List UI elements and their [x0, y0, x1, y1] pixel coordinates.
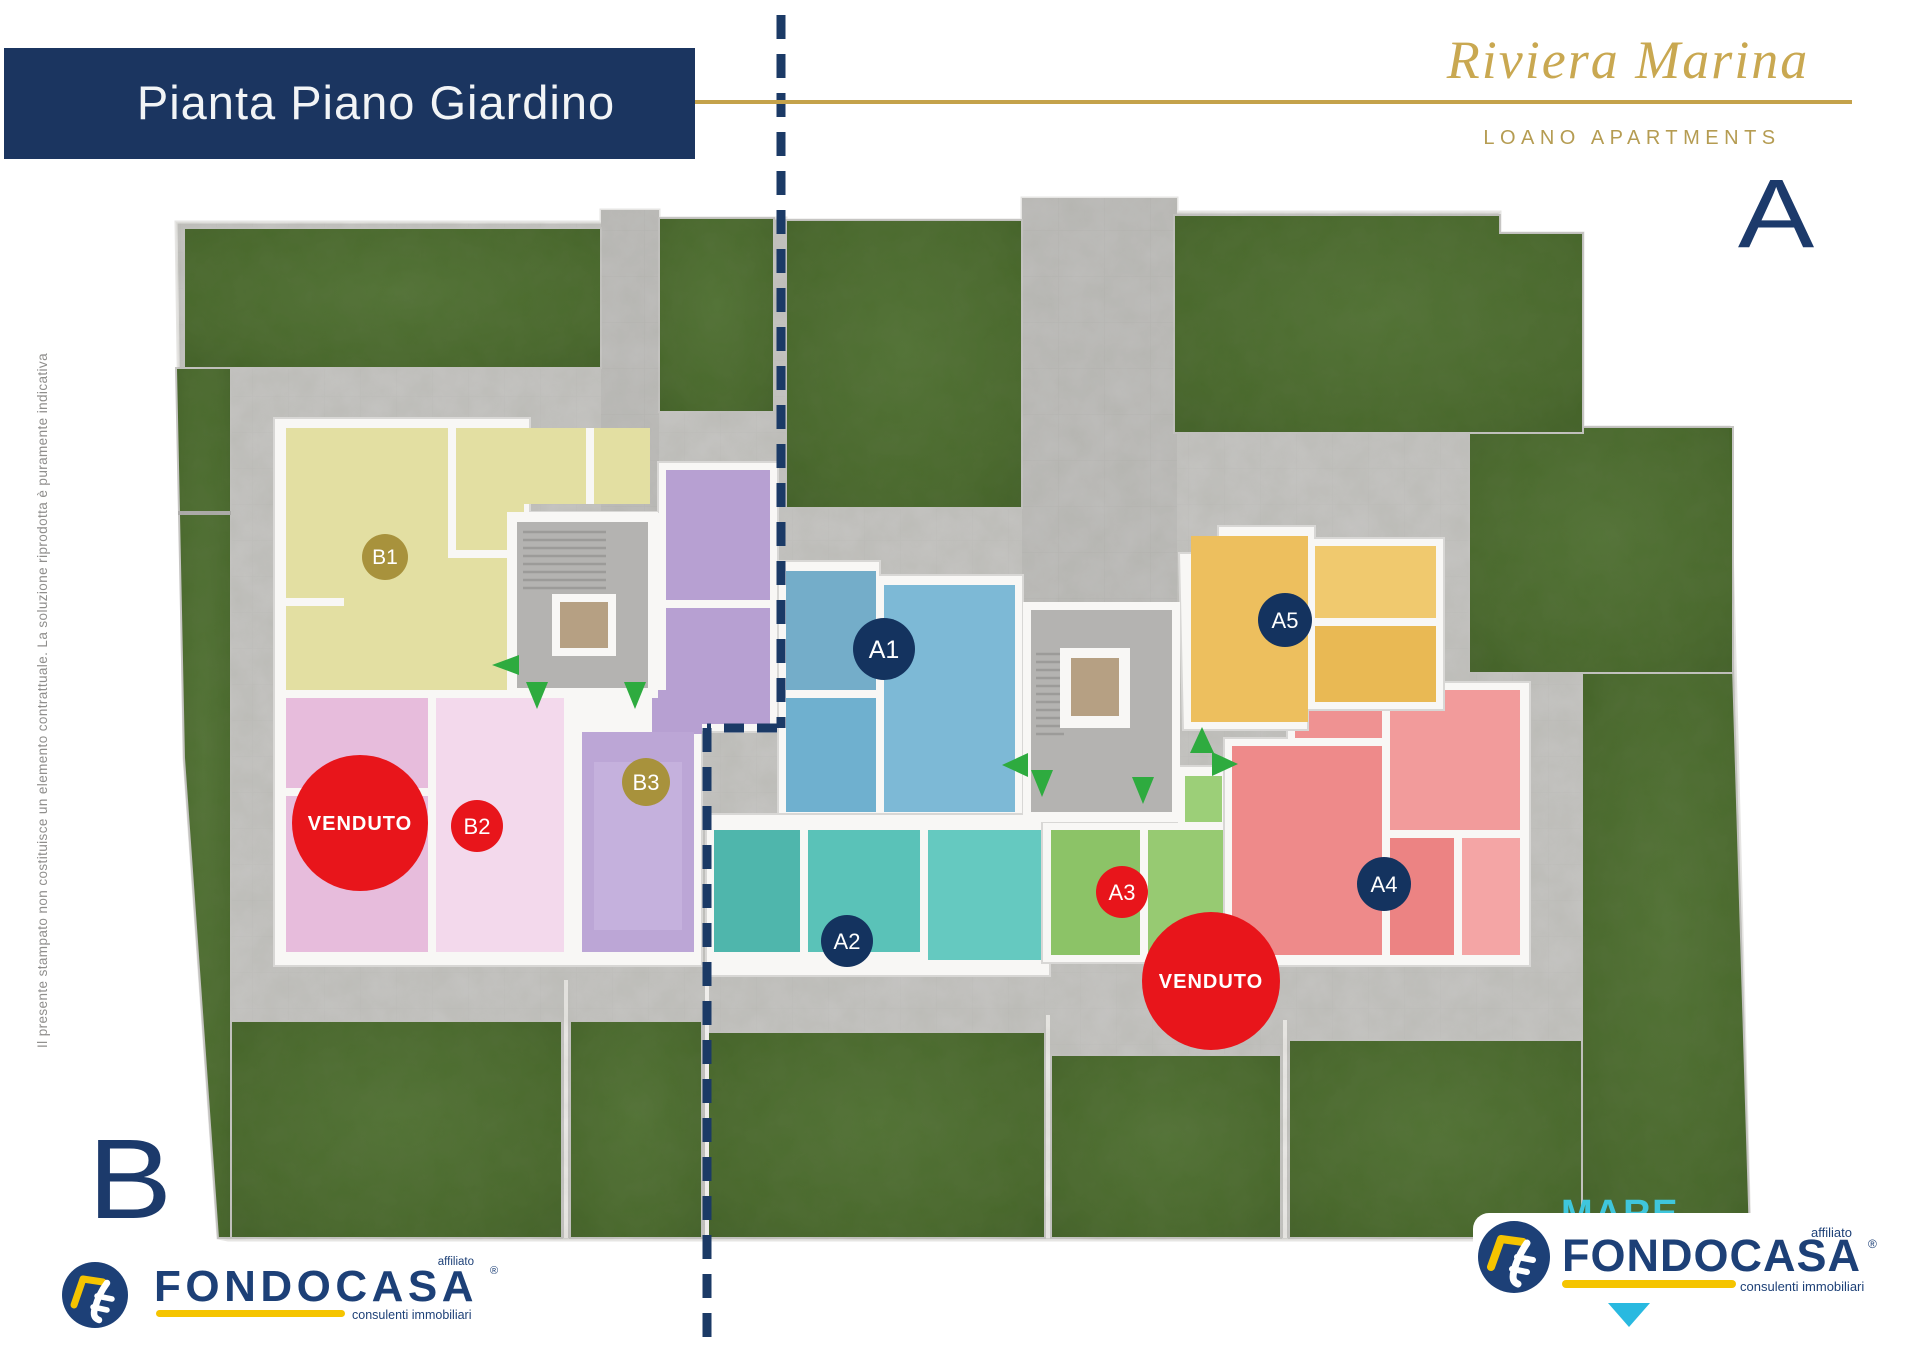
svg-text:®: ®	[490, 1265, 498, 1277]
svg-text:A4: A4	[1371, 872, 1398, 897]
svg-text:FONDOCASA: FONDOCASA	[154, 1262, 478, 1311]
svg-text:B3: B3	[633, 770, 660, 795]
svg-text:LOANO APARTMENTS: LOANO APARTMENTS	[1483, 127, 1780, 149]
svg-text:A2: A2	[834, 929, 861, 954]
svg-text:VENDUTO: VENDUTO	[308, 813, 412, 835]
svg-text:Pianta Piano Giardino: Pianta Piano Giardino	[137, 76, 615, 129]
svg-text:affiliato: affiliato	[438, 1256, 474, 1268]
svg-text:A1: A1	[869, 636, 900, 664]
svg-text:affiliato: affiliato	[1811, 1225, 1852, 1240]
svg-text:A: A	[1738, 160, 1815, 268]
svg-text:B: B	[88, 1116, 172, 1242]
svg-text:A5: A5	[1272, 608, 1299, 633]
svg-text:consulenti immobiliari: consulenti immobiliari	[352, 1308, 472, 1322]
svg-text:B2: B2	[464, 814, 491, 839]
svg-text:consulenti immobiliari: consulenti immobiliari	[1740, 1279, 1864, 1294]
svg-text:®: ®	[1868, 1237, 1877, 1251]
svg-text:B1: B1	[372, 546, 398, 569]
svg-text:VENDUTO: VENDUTO	[1159, 971, 1263, 993]
svg-text:Il presente stampato non costi: Il presente stampato non costituisce un …	[35, 353, 50, 1048]
svg-text:A3: A3	[1109, 880, 1136, 905]
svg-text:Riviera Marina: Riviera Marina	[1446, 30, 1809, 90]
